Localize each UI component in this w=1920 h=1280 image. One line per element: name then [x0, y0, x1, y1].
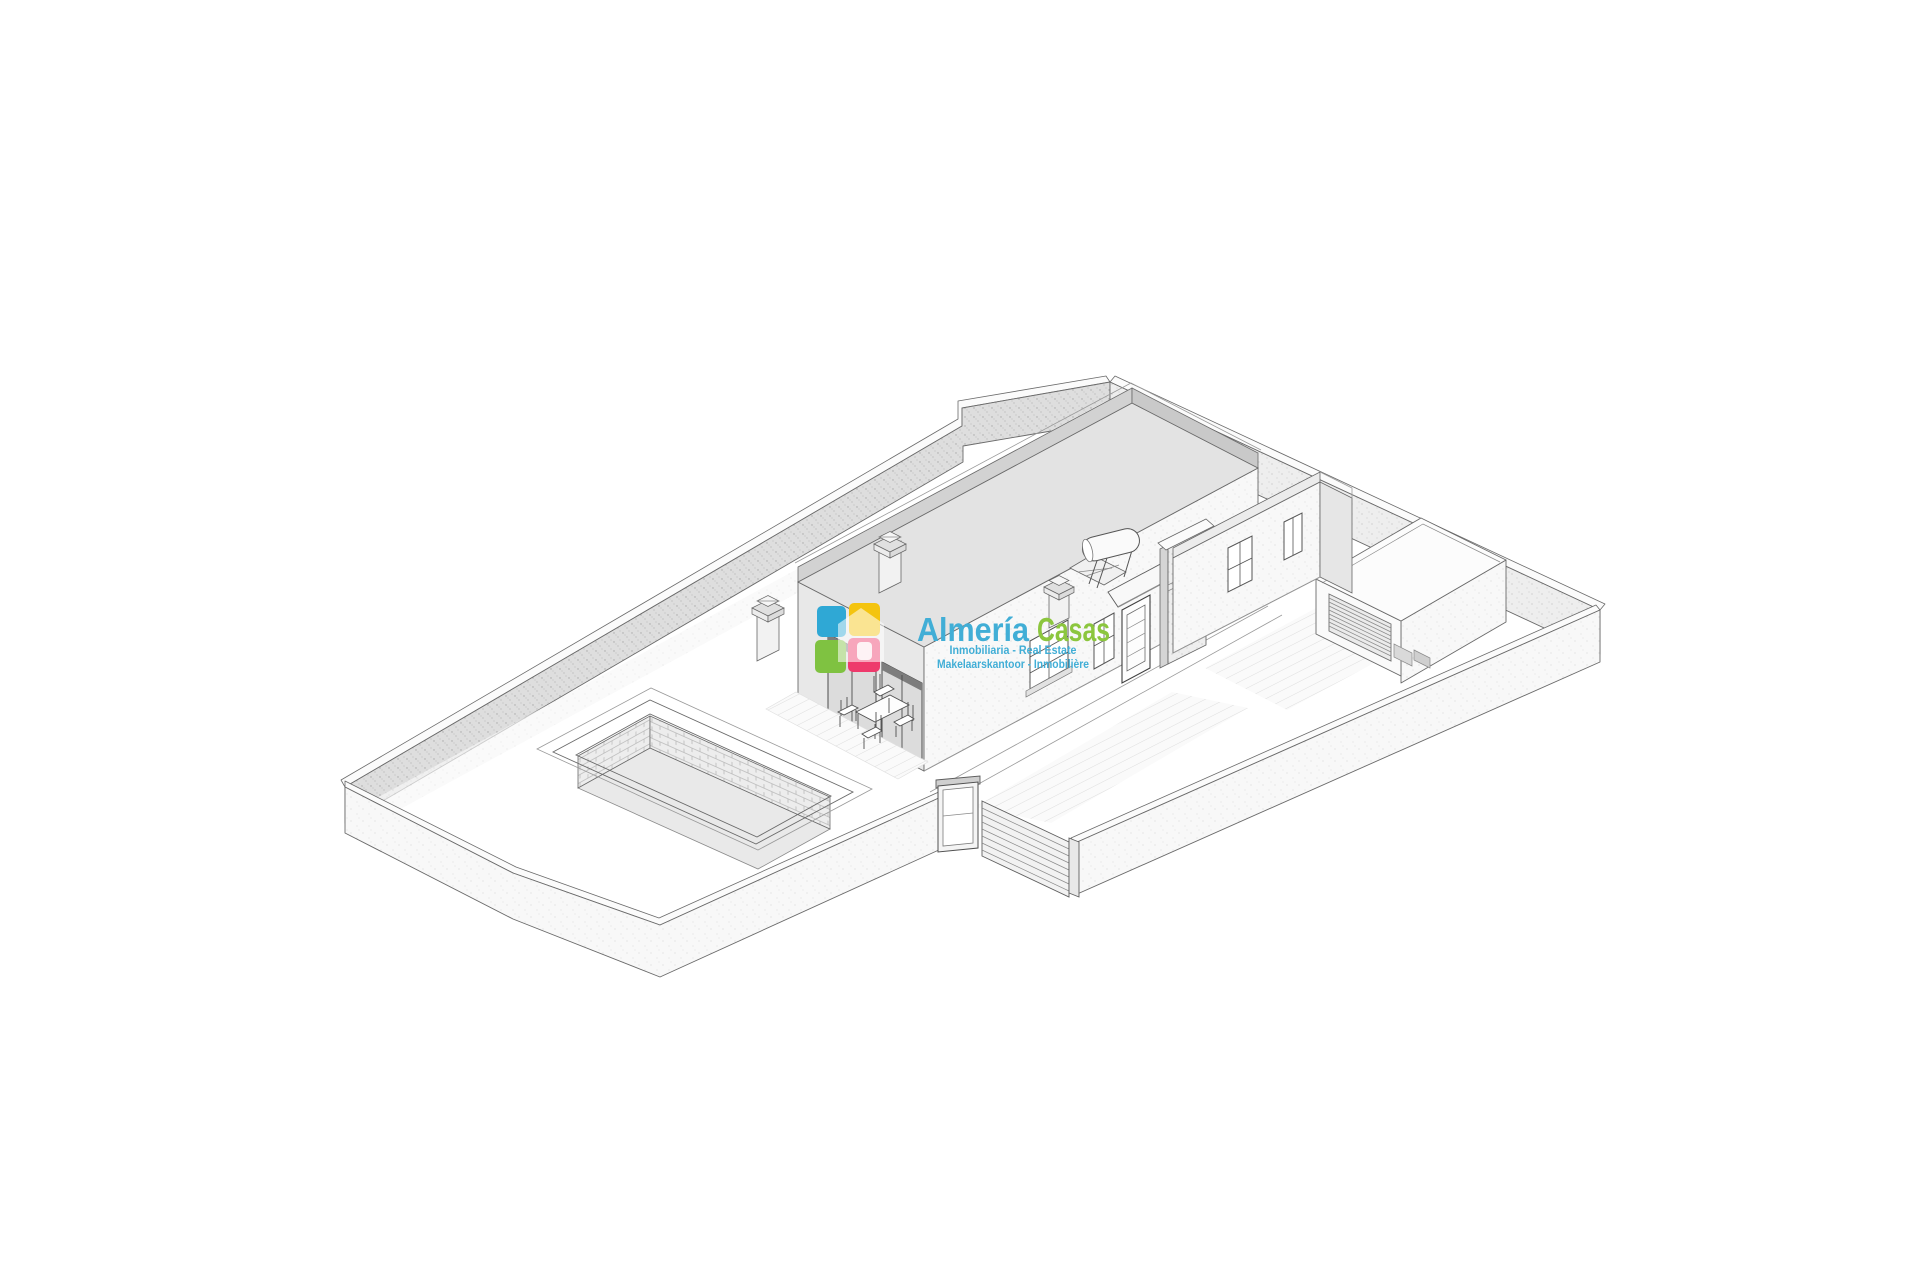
- logo-tagline-2: Makelaarskantoor - Inmobilière: [937, 657, 1089, 671]
- entrance-door: [1122, 595, 1150, 683]
- watermark-logo: Almería Casas Inmobiliaria - Real Estate…: [815, 603, 1110, 673]
- chimney-west: [752, 596, 784, 662]
- logo-house-door: [857, 642, 872, 660]
- wing-end-facade: [1320, 482, 1352, 593]
- logo-tagline-1: Inmobiliaria - Real Estate: [950, 643, 1077, 657]
- pedestrian-door-leaf: [943, 787, 973, 846]
- gate-post: [1069, 838, 1079, 897]
- architectural-rendering-page: Almería Casas Inmobiliaria - Real Estate…: [0, 0, 1920, 1280]
- site-plan-rendering: Almería Casas Inmobiliaria - Real Estate…: [0, 0, 1920, 1280]
